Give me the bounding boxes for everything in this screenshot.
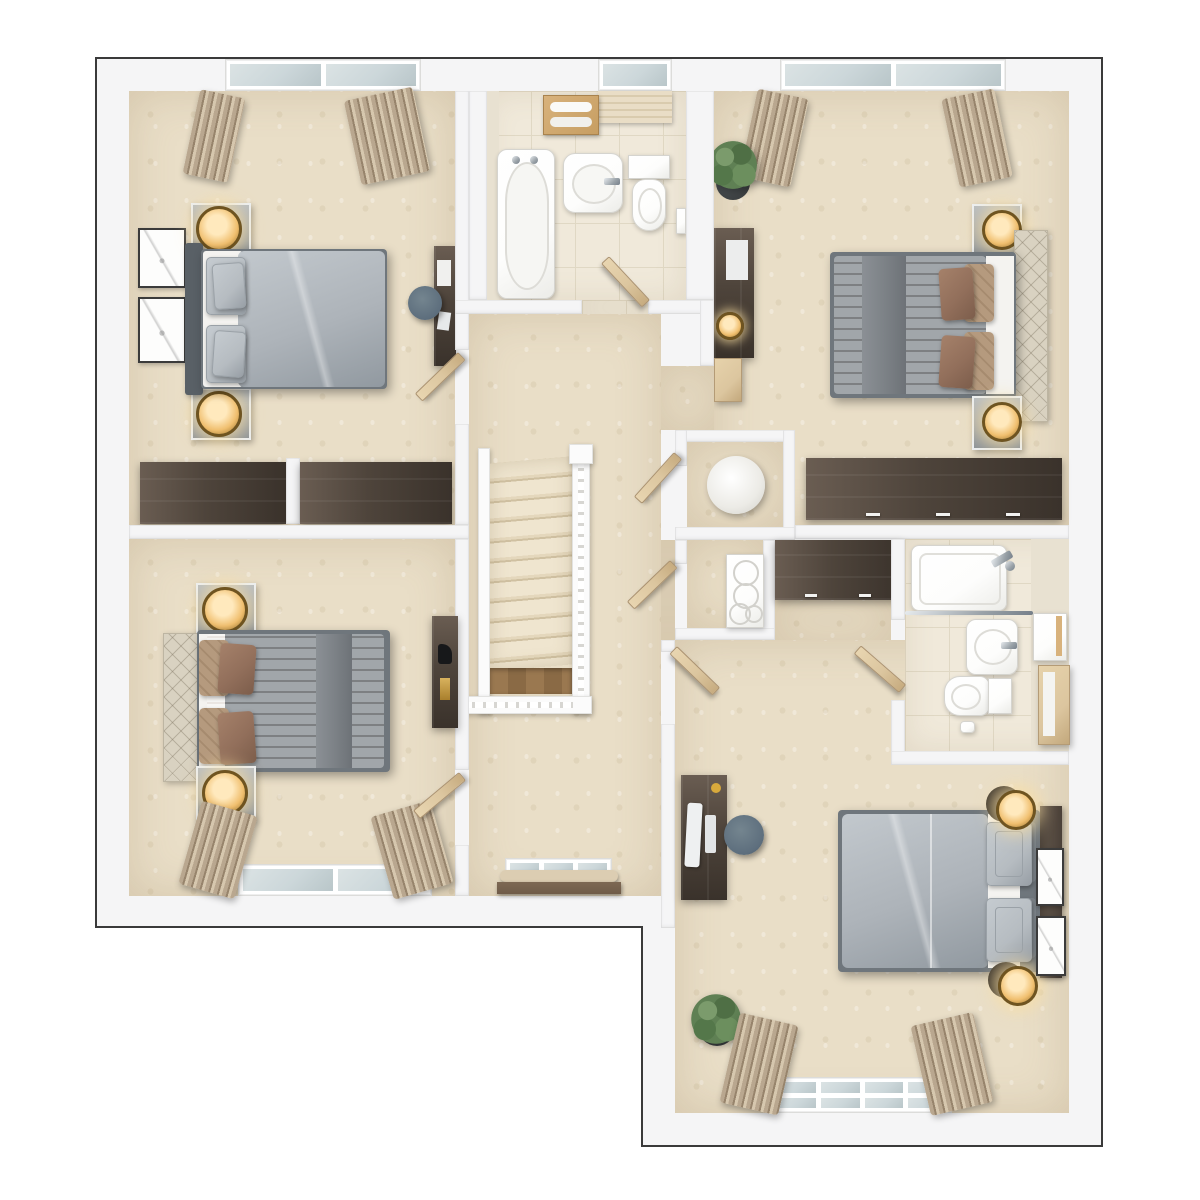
ensuite-tall-cabinet <box>1038 665 1070 745</box>
bedroom2-headboard <box>1014 230 1048 422</box>
room-en-suite <box>905 539 1069 751</box>
towel-ring <box>676 208 686 234</box>
ensuite-tap <box>1001 642 1017 649</box>
bathroom-toilet-cistern <box>628 155 670 179</box>
bedroom2-lamp-bottom <box>982 402 1022 442</box>
ensuite-toilet-cistern <box>988 678 1012 714</box>
bedroom2-bed-runner <box>862 256 906 394</box>
bedroom4-keyboard <box>705 815 716 853</box>
bathroom-towel-shelf <box>543 95 599 135</box>
bedroom4-lamp-bottom <box>998 966 1038 1006</box>
bedroom2-desk-lamp <box>716 312 744 340</box>
bedroom3-task-lamp <box>438 644 452 664</box>
wall-bedroom4-left <box>661 724 675 928</box>
bathroom-basin <box>563 153 623 213</box>
wall-bathroom-bottom-left <box>455 300 582 314</box>
bedroom4-wall-art-2 <box>1036 916 1066 976</box>
ensuite-mirror-cabinet <box>1033 613 1067 661</box>
bedroom3-dresser <box>432 616 458 728</box>
bedroom3-bed <box>197 630 390 772</box>
bedroom4-stool <box>724 815 764 855</box>
bedroom1-bed <box>201 249 387 389</box>
bedroom4-duvet <box>842 814 988 968</box>
staircase <box>490 456 572 671</box>
wall-ensuite-left-upper <box>891 539 905 620</box>
bedroom1-stool <box>408 286 442 320</box>
bedroom2-wardrobe <box>806 458 1062 520</box>
wall-bedroom1-bottom <box>129 525 469 539</box>
bath-taps <box>512 156 520 164</box>
landing-sill-fabric <box>500 870 618 882</box>
balustrade-newel <box>569 444 593 464</box>
bedroom3-lamp-top <box>202 587 248 633</box>
bedroom4-landing-wardrobe <box>775 540 903 600</box>
bedroom1-lamp-bottom <box>196 391 242 437</box>
bedroom1-wall-art-1 <box>138 228 186 288</box>
bedroom4-wall-art-1 <box>1036 848 1064 906</box>
bedroom2-window <box>780 59 1006 91</box>
ensuite-basin <box>966 619 1018 675</box>
bedroom2-pillow <box>938 267 976 321</box>
bedroom4-desk <box>681 775 727 900</box>
bedroom4-pillow <box>986 822 1032 886</box>
bedroom1-duvet <box>238 251 385 387</box>
wall-bedroom1-right-lower <box>455 424 469 525</box>
floor-plan-render <box>0 0 1200 1200</box>
bathroom-window <box>598 59 672 91</box>
wall-bathroom-left <box>469 91 487 300</box>
bedroom1-wardrobe-right <box>300 462 452 524</box>
bedroom2-plant <box>706 138 760 192</box>
bedroom4-lamp-top <box>996 790 1036 830</box>
bedroom4-monitor <box>684 803 702 868</box>
cupboard-shelf-unit <box>726 554 764 628</box>
landing-radiator-shelf <box>497 882 621 894</box>
basin-tap <box>604 178 620 185</box>
toilet-roll <box>960 721 975 733</box>
bedroom1-wardrobe-left <box>140 462 286 524</box>
bedroom2-desk <box>714 228 754 358</box>
wall-ensuite-bottom <box>891 751 1069 765</box>
bedroom1-window <box>225 59 421 91</box>
shower-screen-rail <box>905 611 1033 615</box>
water-tank <box>707 456 765 514</box>
bedroom2-side-table <box>714 358 742 402</box>
bedroom3-bed-runner <box>316 634 352 768</box>
wall-bathroom-right <box>686 91 714 300</box>
bedroom3-pillow <box>217 643 256 695</box>
wall-bedroom3-right-lower <box>455 845 469 896</box>
wall-bedroom2-bottom <box>795 525 1069 539</box>
bathroom-toilet-bowl <box>632 179 666 231</box>
bathroom-blind <box>598 91 672 123</box>
stair-bottom-wood <box>490 668 572 694</box>
shower-tray <box>911 545 1007 611</box>
ensuite-toilet-bowl <box>944 676 990 716</box>
bedroom4-bed <box>838 810 1040 972</box>
bathtub <box>497 149 555 299</box>
wall-bedroom2-left <box>700 300 714 366</box>
balustrade-side <box>572 446 590 714</box>
bedroom1-wall-art-2 <box>138 297 186 363</box>
bedroom3-headboard <box>163 633 199 782</box>
bedroom2-bed <box>830 252 1016 398</box>
